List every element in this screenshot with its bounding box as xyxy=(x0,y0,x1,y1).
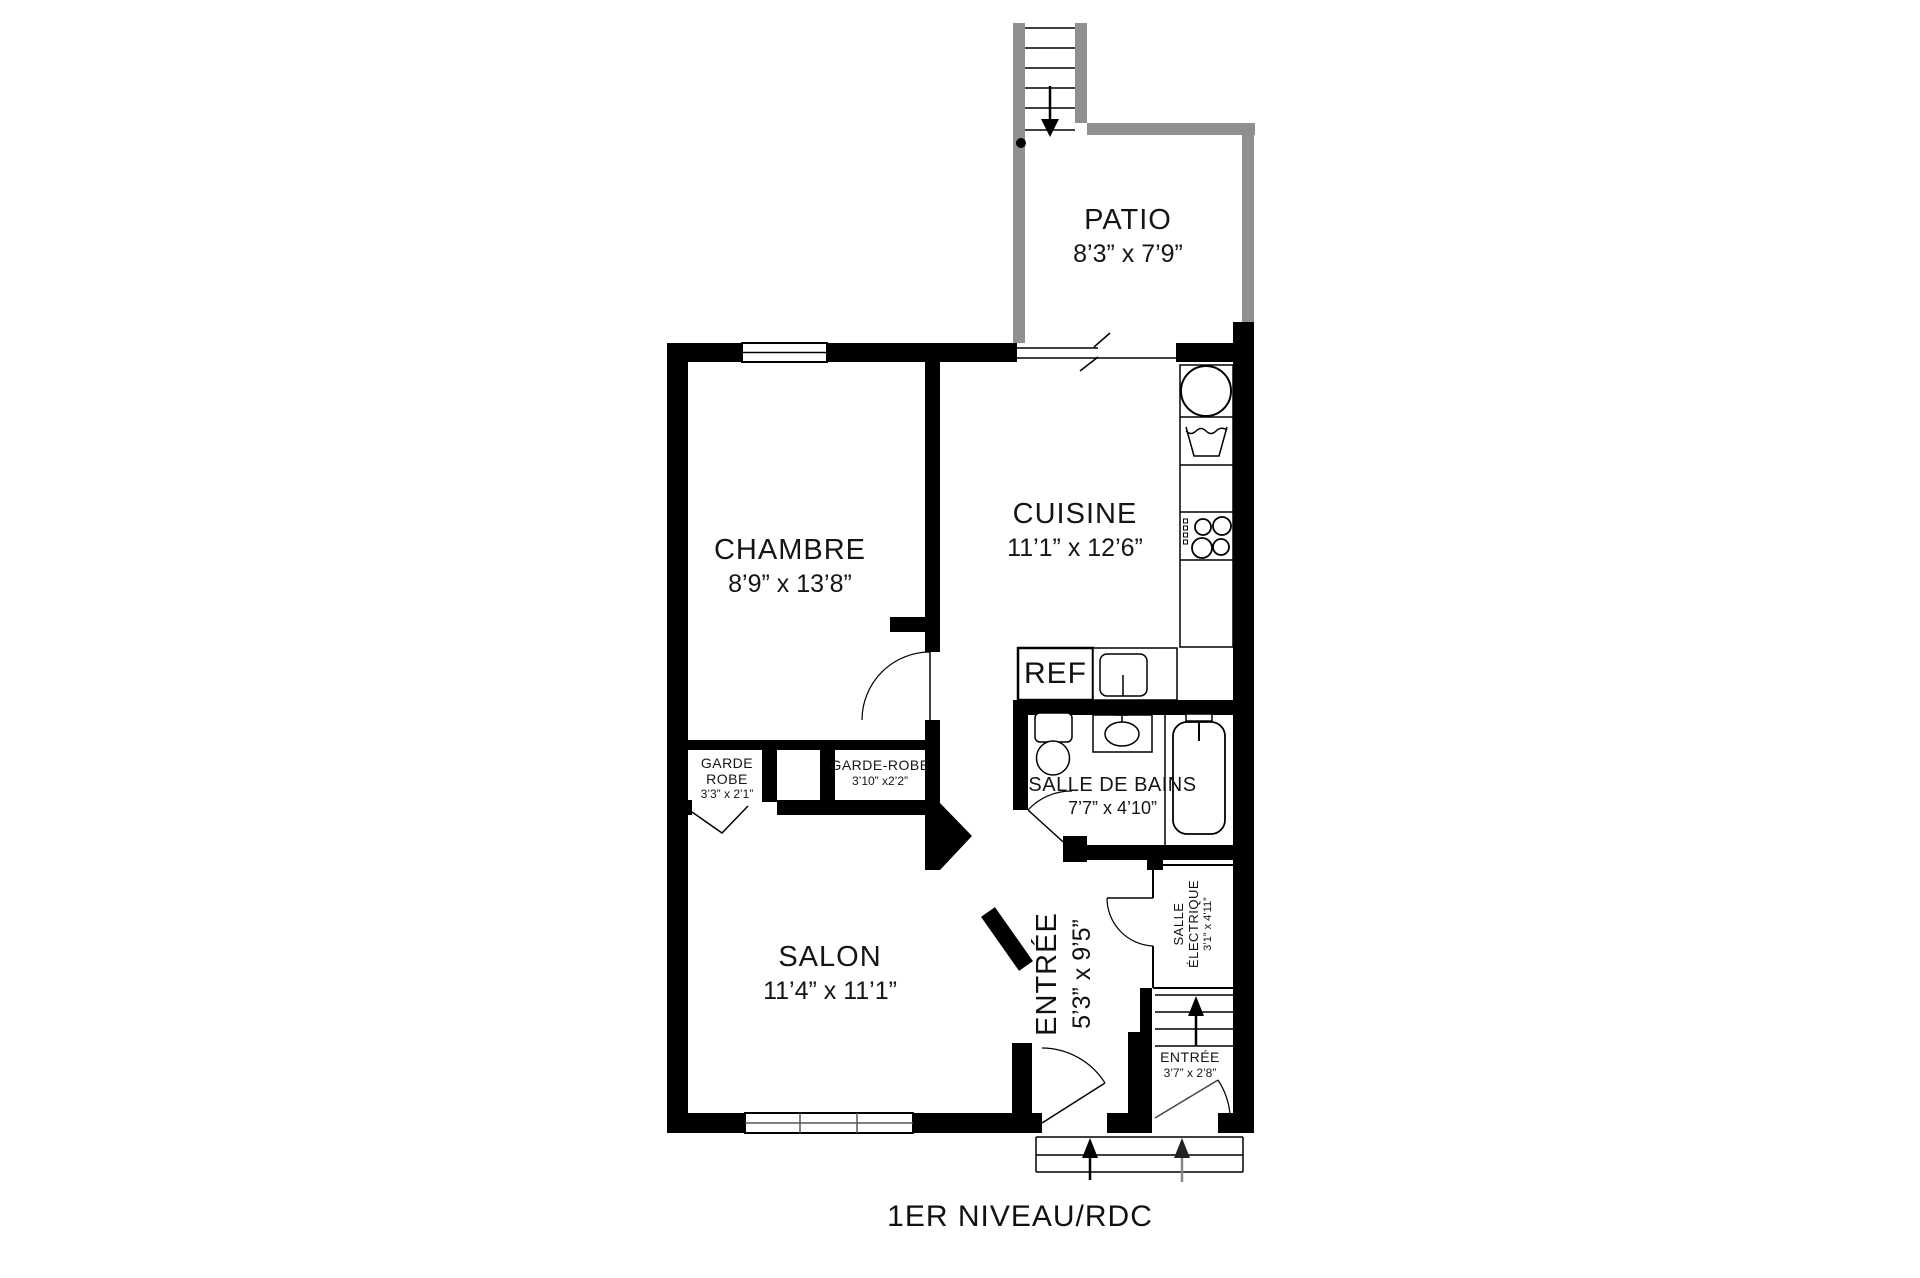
salon-label: SALON 11’4” x 11’1” xyxy=(730,941,930,1005)
closet-bottom-wall xyxy=(777,800,925,815)
closet-top-wall xyxy=(688,740,940,750)
salle-de-bains-name: SALLE DE BAINS xyxy=(1010,774,1215,796)
entry-up-arrow-left-icon xyxy=(1082,1138,1098,1180)
patio-sliding-door xyxy=(1017,333,1176,371)
right-exterior-wall xyxy=(1233,322,1254,1133)
entree-hall-dims: 5’3” x 9’5” xyxy=(1068,919,1097,1029)
chambre-dims: 8’9” x 13’8” xyxy=(690,570,890,598)
bottom-wall-corner xyxy=(1218,1113,1254,1133)
patio-dims: 8’3” x 7’9” xyxy=(1028,240,1228,268)
plan-title: 1ER NIVEAU/RDC xyxy=(820,1200,1220,1234)
stairs-up-arrow-icon xyxy=(1188,996,1204,1046)
top-wall-seg2 xyxy=(827,343,1017,362)
entree-vestibule-dims: 3’7” x 2’8” xyxy=(1142,1067,1238,1080)
top-wall-seg1 xyxy=(667,343,742,362)
chambre-window xyxy=(742,343,827,362)
stairs-left-wall xyxy=(1140,988,1152,1035)
garde-robe-2-name: GARDE-ROBE xyxy=(822,758,938,774)
bottom-wall-seg2 xyxy=(913,1113,1042,1133)
floor-plan-drawing xyxy=(0,0,1920,1278)
salon-dims: 11’4” x 11’1” xyxy=(730,977,930,1005)
patio-walls xyxy=(1013,23,1255,343)
top-wall-seg3 xyxy=(1176,343,1233,362)
dishwasher-icon xyxy=(1093,648,1177,700)
salon-window xyxy=(745,1113,913,1133)
entree-hall-label: ENTRÉE 5’3” x 9’5” xyxy=(1032,864,1096,1084)
entree-vestibule-name: ENTRÉE xyxy=(1142,1050,1238,1066)
salle-electrique-dims: 3’1” x 4’11” xyxy=(1202,897,1214,951)
patio-top-wall xyxy=(1087,123,1255,135)
chambre-divider-upper xyxy=(925,362,940,652)
closet-bottom-left-bit xyxy=(667,800,692,815)
elec-room-door xyxy=(1107,898,1153,946)
salle-de-bains-dims: 7’7” x 4’10” xyxy=(1010,798,1215,818)
toilet-icon xyxy=(1035,713,1072,775)
cuisine-dims: 11’1” x 12’6” xyxy=(975,534,1175,562)
column-dot xyxy=(1016,138,1026,148)
left-exterior-wall xyxy=(667,343,688,1133)
chambre-wall-stub xyxy=(890,617,925,632)
bath-door-hinge-block xyxy=(1063,836,1087,862)
entry-steps xyxy=(1036,1137,1243,1172)
garde-robe-2-label: GARDE-ROBE 3’10” x2’2” xyxy=(822,758,938,788)
refrigerator-label: REF xyxy=(1018,648,1093,700)
garde-robe-2-dims: 3’10” x2’2” xyxy=(822,775,938,788)
garde-robe-1-label: GARDE ROBE 3’3” x 2’1” xyxy=(690,756,764,802)
patio-name: PATIO xyxy=(1028,204,1228,236)
bathroom-sink-icon xyxy=(1093,710,1152,752)
vestibule-entry-door xyxy=(1155,1080,1230,1118)
salon-name: SALON xyxy=(730,941,930,973)
garde-robe-1-name-line2: ROBE xyxy=(690,772,764,788)
patio-right-wall xyxy=(1242,123,1254,322)
garde-robe-1-name-line1: GARDE xyxy=(690,756,764,772)
garde-robe-1-dims: 3’3” x 2’1” xyxy=(690,788,764,801)
patio-label: PATIO 8’3” x 7’9” xyxy=(1028,204,1228,268)
chambre-door xyxy=(862,652,930,720)
salle-de-bains-label: SALLE DE BAINS 7’7” x 4’10” xyxy=(1010,774,1215,819)
elec-room-pier xyxy=(1147,845,1163,870)
floor-plan-page: PATIO 8’3” x 7’9” CHAMBRE 8’9” x 13’8” C… xyxy=(0,0,1920,1278)
cuisine-label: CUISINE 11’1” x 12’6” xyxy=(975,498,1175,562)
diagonal-wall xyxy=(988,912,1026,966)
central-column xyxy=(925,803,972,870)
chambre-label: CHAMBRE 8’9” x 13’8” xyxy=(690,534,890,598)
salle-electrique-label: SALLE ÉLECTRIQUE 3’1” x 4’11” xyxy=(1169,864,1215,984)
bottom-wall-pier xyxy=(1107,1113,1152,1133)
entree-vestibule-label: ENTRÉE 3’7” x 2’8” xyxy=(1142,1050,1238,1080)
salle-electrique-name-line1: SALLE xyxy=(1171,903,1186,946)
patio-stairs-right-wall xyxy=(1075,23,1087,123)
entree-hall-name: ENTRÉE xyxy=(1031,912,1064,1036)
cuisine-name: CUISINE xyxy=(975,498,1175,530)
closet-divider-1 xyxy=(762,740,777,802)
salon-entree-wall xyxy=(1012,1043,1032,1113)
chambre-name: CHAMBRE xyxy=(690,534,890,566)
bottom-wall-seg1 xyxy=(667,1113,745,1133)
patio-left-wall xyxy=(1013,23,1025,343)
salle-electrique-name-line2: ÉLECTRIQUE xyxy=(1186,880,1201,968)
closet-bifold-door xyxy=(692,806,748,833)
entry-up-arrow-right-icon xyxy=(1174,1138,1190,1182)
